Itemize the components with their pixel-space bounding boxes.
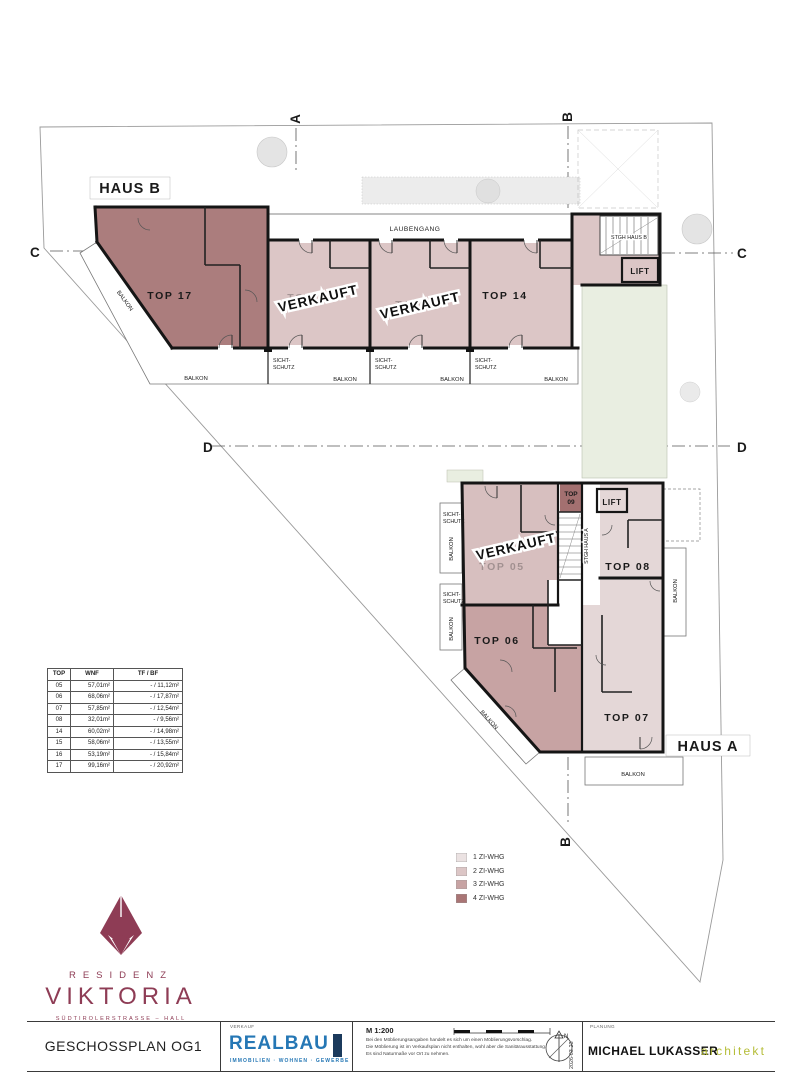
- unit-top09-fill: [560, 483, 582, 513]
- cell-wnf: 53,19m²: [71, 749, 114, 761]
- tree: [680, 382, 700, 402]
- cell-wnf: 32,01m²: [71, 715, 114, 727]
- cell-tfbf: - / 20,92m²: [114, 761, 183, 773]
- legend-swatch: [456, 894, 467, 903]
- tree: [257, 137, 287, 167]
- sichtschutz-label: SCHUTZ: [475, 365, 497, 371]
- cell-top: 15: [48, 738, 71, 750]
- section-marker-d: D: [203, 440, 213, 455]
- cell-top: 17: [48, 761, 71, 773]
- area-table-header-row: TOP WNF TF / BF: [48, 669, 183, 681]
- unit-label-top14: TOP 14: [482, 290, 527, 302]
- unit-label-top09-line2: 09: [567, 499, 575, 506]
- realbau-logo-block: [333, 1034, 342, 1057]
- legend-label: 3 ZI-WHG: [473, 881, 505, 888]
- cell-wnf: 99,16m²: [71, 761, 114, 773]
- cell-tfbf: - / 14,98m²: [114, 726, 183, 738]
- table-row: 0757,85m²- / 12,54m²: [48, 703, 183, 715]
- footer-top-border: [27, 1021, 775, 1022]
- section-marker-b: B: [560, 112, 575, 122]
- legend-item: 2 ZI-WHG: [456, 865, 505, 879]
- brand-residenz: RESIDENZ: [36, 970, 206, 981]
- unit-label-top05: TOP 05: [479, 561, 524, 573]
- table-row: 1558,06m²- / 13,55m²: [48, 738, 183, 750]
- legend-label: 4 ZI-WHG: [473, 895, 505, 902]
- section-marker-c: C: [30, 245, 40, 260]
- section-marker-c: C: [737, 246, 747, 261]
- disclaimer-line-1: Bei den Möblierungsangaben handelt es si…: [366, 1038, 566, 1045]
- unit-label-top09-line1: TOP: [564, 491, 578, 498]
- cell-wnf: 57,85m²: [71, 703, 114, 715]
- dashed-roof-outline: [578, 130, 658, 208]
- cell-top: 06: [48, 692, 71, 704]
- area-table: TOP WNF TF / BF 0557,01m²- / 11,12m² 066…: [47, 668, 183, 773]
- tree: [682, 214, 712, 244]
- haus-b-title: HAUS B: [99, 181, 161, 197]
- green-patch: [447, 470, 483, 482]
- footer-divider: [352, 1021, 353, 1071]
- legend-item: 4 ZI-WHG: [456, 892, 505, 906]
- footer-divider: [220, 1021, 221, 1071]
- haus-a-balcony-bottom: [585, 757, 683, 785]
- stairs-haus-a: [558, 512, 582, 580]
- legend-swatch: [456, 880, 467, 889]
- sichtschutz-label: SICHT-: [475, 358, 493, 364]
- balkon-label: BALKON: [449, 537, 455, 561]
- disclaimer-line-2: Die Möblierung ist im Verkaufsplan nicht…: [366, 1045, 566, 1052]
- legend: 1 ZI-WHG 2 ZI-WHG 3 ZI-WHG 4 ZI-WHG: [456, 851, 505, 905]
- col-header-top: TOP: [48, 669, 71, 681]
- cell-tfbf: - / 12,54m²: [114, 703, 183, 715]
- cell-tfbf: - / 9,56m²: [114, 715, 183, 727]
- legend-swatch: [456, 853, 467, 862]
- cell-top: 05: [48, 680, 71, 692]
- sichtschutz-label: SCHUTZ: [443, 519, 465, 525]
- legend-item: 1 ZI-WHG: [456, 851, 505, 865]
- sichtschutz-label: SICHT-: [443, 512, 461, 518]
- lift-b-label: LIFT: [630, 267, 649, 276]
- realbau-logo: REALBAU: [229, 1033, 329, 1055]
- haus-a-title: HAUS A: [677, 739, 738, 755]
- brand-logo: RESIDENZ VIKTORIA SÜDTIROLERSTRASSE – HA…: [36, 893, 206, 1022]
- section-marker-b: B: [558, 837, 573, 847]
- cell-top: 14: [48, 726, 71, 738]
- table-row: 0557,01m²- / 11,12m²: [48, 680, 183, 692]
- cell-tfbf: - / 13,55m²: [114, 738, 183, 750]
- section-marker-d: D: [737, 440, 747, 455]
- sichtschutz-label: SICHT-: [273, 358, 291, 364]
- legend-label: 1 ZI-WHG: [473, 854, 505, 861]
- cell-wnf: 58,06m²: [71, 738, 114, 750]
- table-row: 1799,16m²- / 20,92m²: [48, 761, 183, 773]
- sichtschutz-label: SCHUTZ: [375, 365, 397, 371]
- balkon-label: BALKON: [673, 579, 679, 603]
- balkon-label: BALKON: [544, 377, 568, 383]
- sichtschutz-label: SCHUTZ: [273, 365, 295, 371]
- cell-top: 07: [48, 703, 71, 715]
- cell-tfbf: - / 15,84m²: [114, 749, 183, 761]
- disclaimer-line-3: Es sind Naturmaße vor Ort zu nehmen.: [366, 1052, 566, 1059]
- balkon-label: BALKON: [333, 377, 357, 383]
- cell-wnf: 57,01m²: [71, 680, 114, 692]
- legend-swatch: [456, 867, 467, 876]
- balkon-label: BALKON: [449, 617, 455, 641]
- plan-sheet: HAUS B HAUS A LAUBENGANG STGH HAUS B LIF…: [0, 0, 785, 1080]
- balkon-label: BALKON: [440, 377, 464, 383]
- col-header-wnf: WNF: [71, 669, 114, 681]
- unit-label-top06: TOP 06: [474, 635, 519, 647]
- footer-divider: [582, 1021, 583, 1071]
- table-row: 1460,02m²- / 14,98m²: [48, 726, 183, 738]
- brand-diamond-icon: [96, 893, 146, 957]
- planung-label: PLANUNG: [590, 1024, 615, 1029]
- tree: [476, 179, 500, 203]
- cell-top: 16: [48, 749, 71, 761]
- col-header-tfbf: TF / BF: [114, 669, 183, 681]
- architect-title: architekt: [701, 1044, 766, 1058]
- north-letter: N: [564, 1034, 568, 1040]
- unit-label-top17: TOP 17: [147, 290, 192, 302]
- unit-label-top08: TOP 08: [605, 561, 650, 573]
- legend-label: 2 ZI-WHG: [473, 868, 505, 875]
- laubengang-label: LAUBENGANG: [390, 226, 441, 233]
- architect-name: MICHAEL LUKASSER: [588, 1044, 718, 1058]
- plan-title: GESCHOSSPLAN OG1: [27, 1038, 220, 1054]
- stgh-haus-a-label: STGH HAUS A: [584, 528, 590, 564]
- scale-label: M 1:200: [366, 1026, 394, 1035]
- haus-a-balcony-dashed: [663, 489, 700, 541]
- balkon-label: BALKON: [184, 376, 208, 382]
- sichtschutz-label: SICHT-: [375, 358, 393, 364]
- cell-wnf: 60,02m²: [71, 726, 114, 738]
- unit-label-top07: TOP 07: [604, 712, 649, 724]
- plan-date: 2026-03-23: [569, 1025, 575, 1069]
- scale-bar: [452, 1027, 552, 1035]
- footer-bottom-border: [27, 1071, 775, 1072]
- legend-item: 3 ZI-WHG: [456, 878, 505, 892]
- cell-top: 08: [48, 715, 71, 727]
- realbau-subtitle: IMMOBILIEN · WOHNEN · GEWERBE: [230, 1058, 349, 1064]
- cell-wnf: 68,06m²: [71, 692, 114, 704]
- section-marker-a: A: [288, 114, 303, 124]
- green-courtyard: [582, 285, 667, 478]
- stgh-haus-b-label: STGH HAUS B: [611, 235, 647, 241]
- sichtschutz-label: SCHUTZ: [443, 599, 465, 605]
- verkauf-label: VERKAUF: [230, 1024, 255, 1029]
- cell-tfbf: - / 17,87m²: [114, 692, 183, 704]
- balkon-label: BALKON: [621, 772, 645, 778]
- brand-viktoria: VIKTORIA: [36, 983, 206, 1011]
- lift-a-label: LIFT: [602, 498, 621, 507]
- table-row: 0832,01m²- / 9,56m²: [48, 715, 183, 727]
- cell-tfbf: - / 11,12m²: [114, 680, 183, 692]
- table-row: 0668,06m²- / 17,87m²: [48, 692, 183, 704]
- sichtschutz-label: SICHT-: [443, 592, 461, 598]
- table-row: 1653,19m²- / 15,84m²: [48, 749, 183, 761]
- haus-a-vestibule: [548, 580, 582, 645]
- hedge: [362, 177, 580, 204]
